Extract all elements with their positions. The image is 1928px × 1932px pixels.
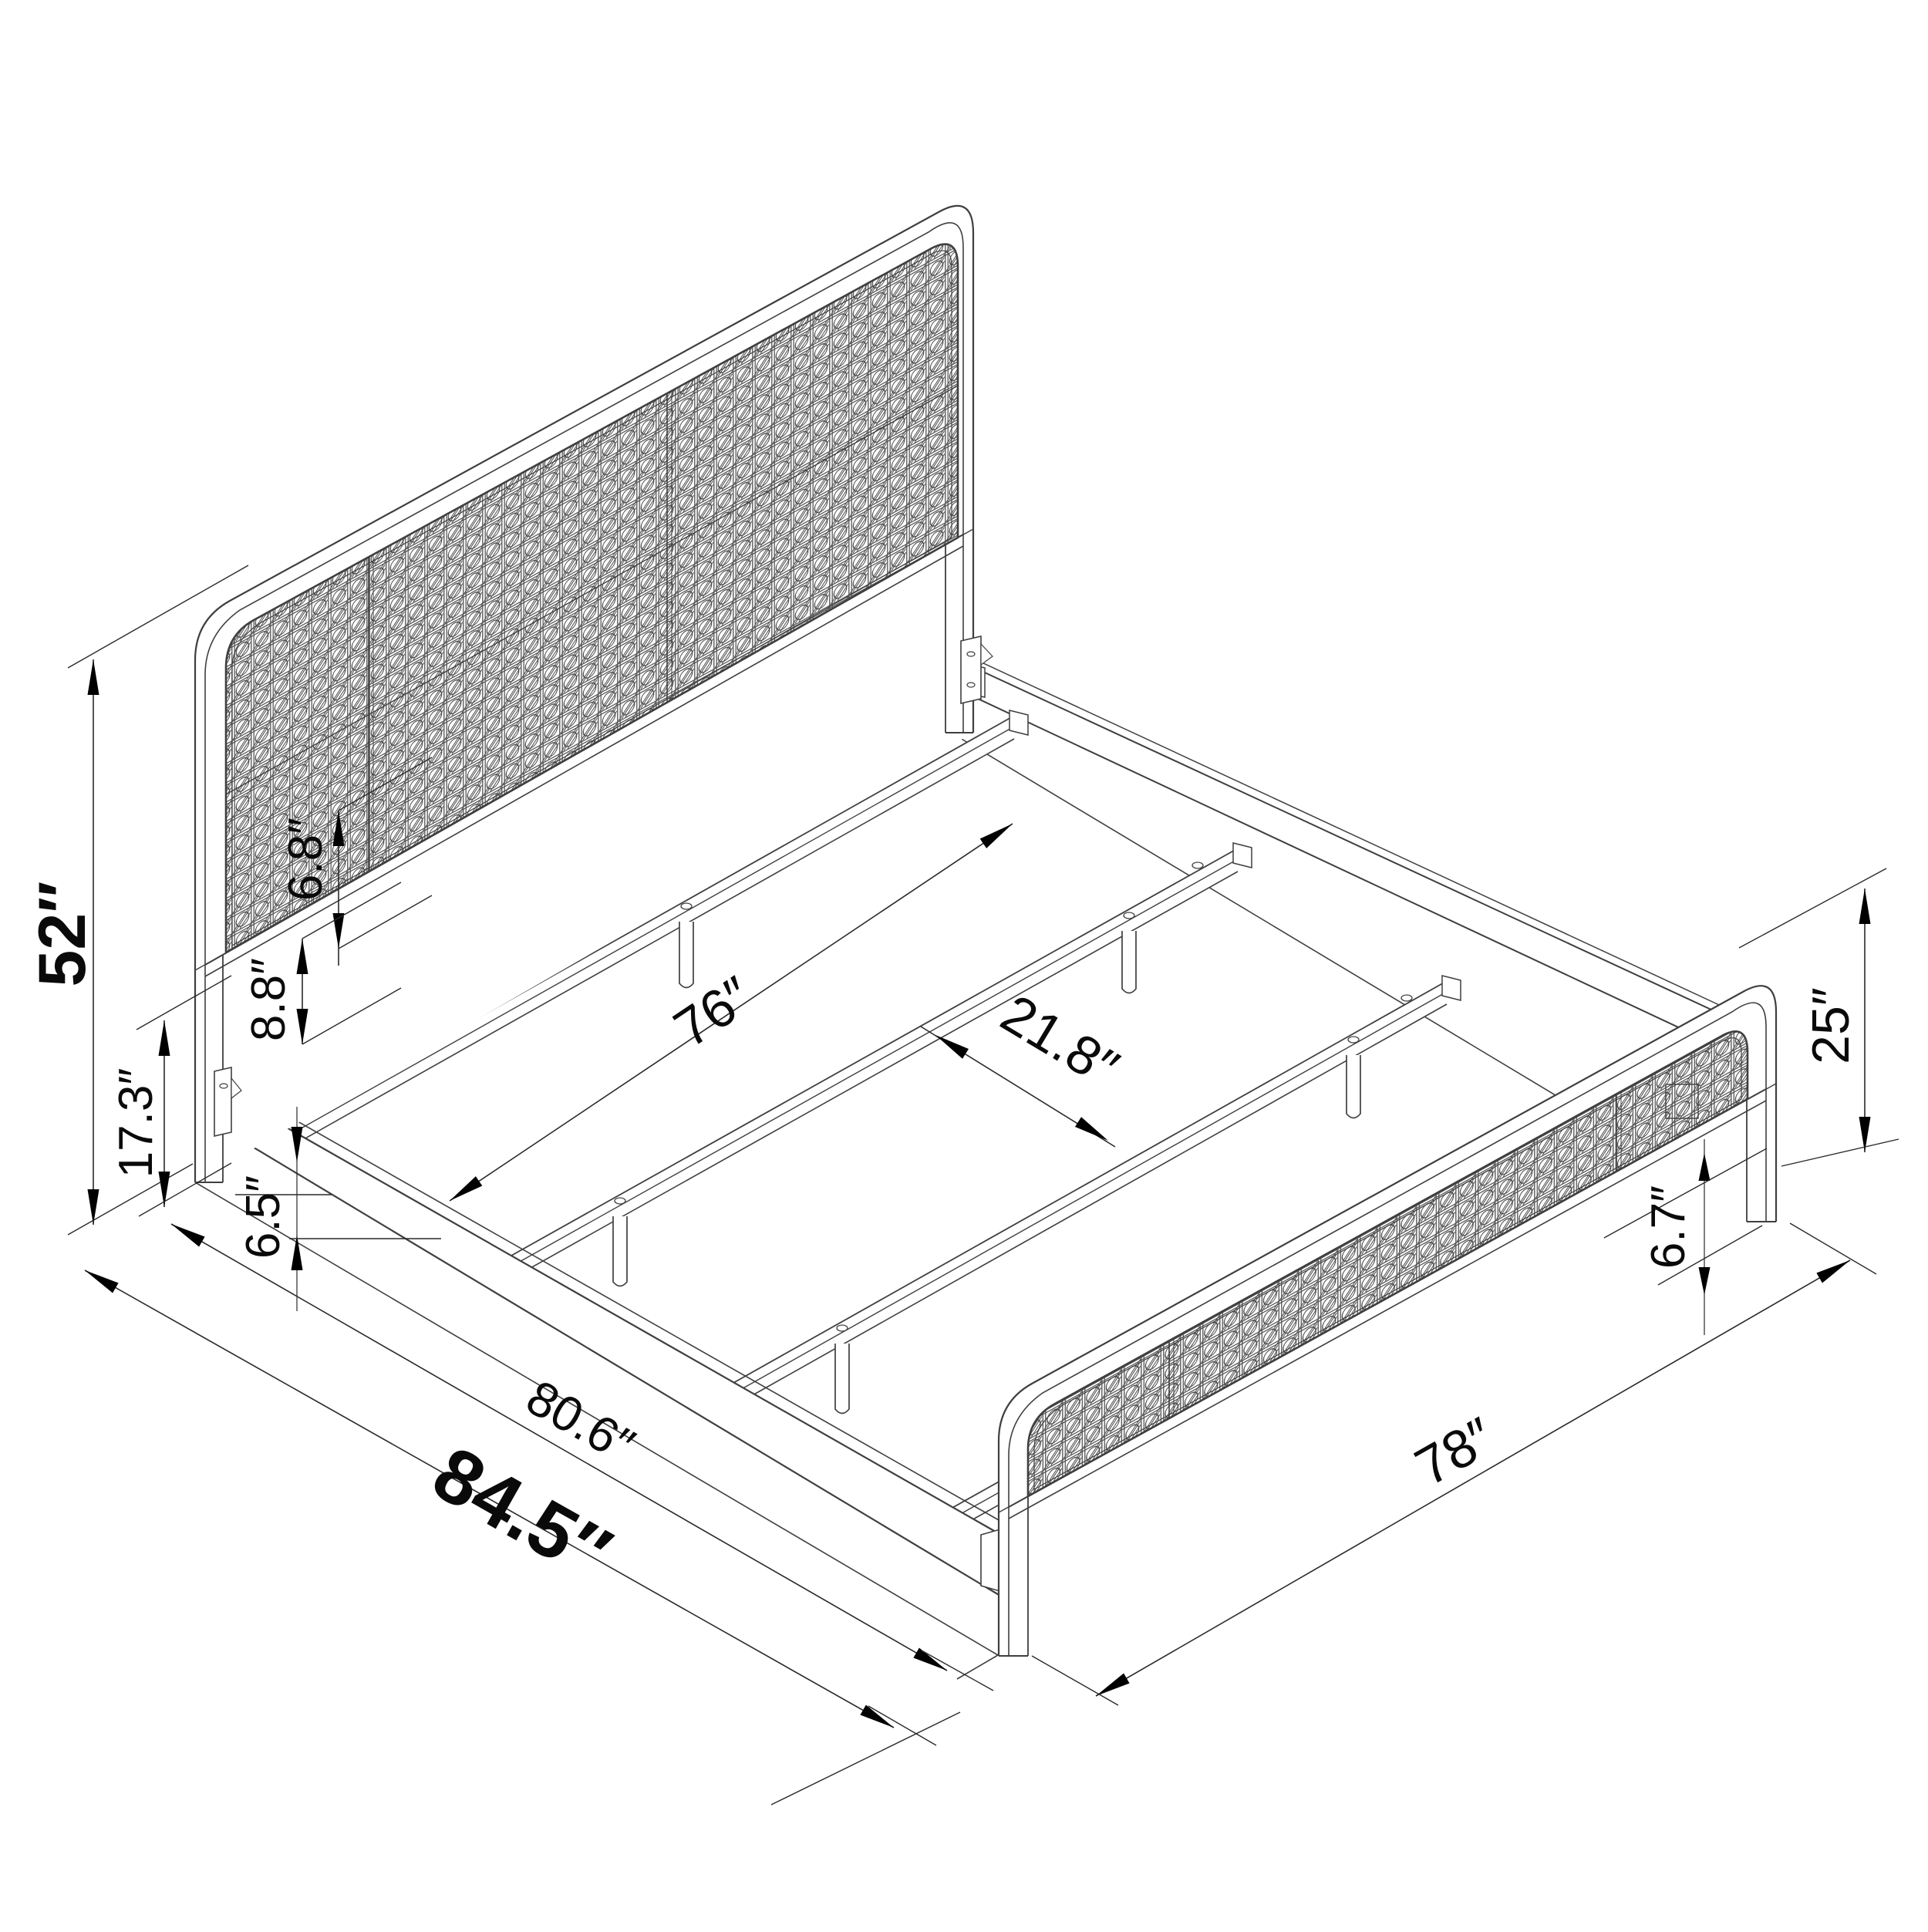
svg-text:8.8″: 8.8″ [242,958,295,1041]
svg-text:6.5″: 6.5″ [237,1175,290,1259]
svg-text:17.3″: 17.3″ [110,1068,163,1178]
svg-text:52″: 52″ [25,882,99,987]
svg-text:6.8″: 6.8″ [279,818,332,901]
svg-text:25″: 25″ [1802,987,1860,1064]
svg-text:6.7″: 6.7″ [1642,1185,1695,1269]
